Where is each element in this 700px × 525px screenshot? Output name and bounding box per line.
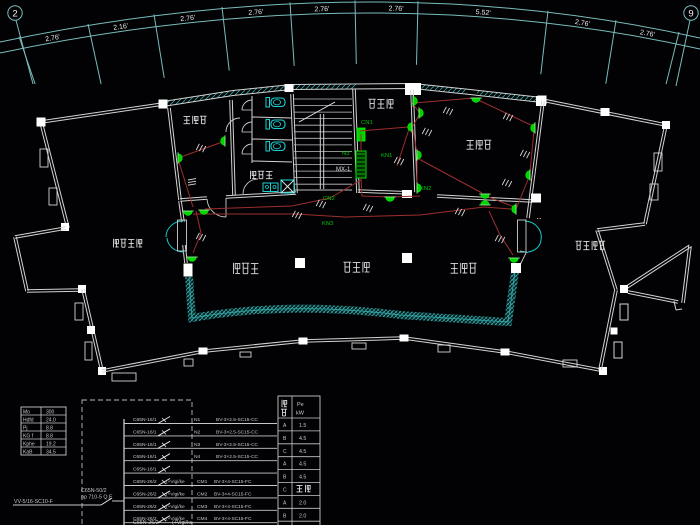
svg-text:8.8: 8.8 [46, 434, 53, 440]
svg-text:C65N-16/1: C65N-16/1 [133, 442, 157, 448]
svg-text:BV-3×2.5-SC15-CC: BV-3×2.5-SC15-CC [216, 442, 259, 448]
svg-text:2: 2 [12, 9, 17, 20]
svg-text:(+Vigi/ke: (+Vigi/ke [166, 504, 185, 510]
svg-text:300: 300 [46, 410, 55, 416]
svg-text:C65N-26/2: C65N-26/2 [133, 491, 157, 497]
svg-text:N3: N3 [194, 442, 201, 448]
svg-text:C65N-26/2: C65N-26/2 [133, 504, 157, 510]
svg-text:MX-1: MX-1 [336, 167, 351, 173]
svg-text:2.0: 2.0 [299, 513, 306, 519]
svg-text:(+Vigi/ke: (+Vigi/ke [172, 520, 193, 525]
svg-text:CM4: CM4 [197, 516, 208, 522]
svg-text:5.52': 5.52' [475, 9, 491, 17]
svg-text:C65N-50/2: C65N-50/2 [81, 488, 107, 494]
svg-text:2.0: 2.0 [299, 500, 306, 506]
svg-text:Pj: Pj [23, 426, 27, 432]
svg-text:C65N-26/2: C65N-26/2 [133, 479, 157, 485]
svg-text:2.76': 2.76' [388, 6, 403, 13]
svg-text:C: C [283, 449, 287, 455]
svg-text:N4: N4 [194, 454, 201, 460]
svg-text:KaB: KaB [23, 450, 33, 456]
svg-text:BV-3×2.5-SC15-CC: BV-3×2.5-SC15-CC [216, 429, 259, 435]
svg-text:C65N-16/1: C65N-16/1 [133, 454, 157, 460]
svg-text:N2: N2 [194, 429, 201, 435]
svg-text:BV-3×2.5-SC15-CC: BV-3×2.5-SC15-CC [216, 417, 259, 423]
svg-text:KN3: KN3 [322, 221, 334, 227]
svg-text:BV-3×4-SC15-FC: BV-3×4-SC15-FC [214, 491, 252, 497]
svg-text:24.0: 24.0 [46, 418, 56, 424]
svg-text:Mo: Mo [23, 410, 30, 416]
svg-text:CN1: CN1 [361, 120, 373, 126]
svg-text:BV-3×2.5-SC15-CC: BV-3×2.5-SC15-CC [216, 454, 259, 460]
svg-text:C65N-16/1: C65N-16/1 [133, 467, 157, 473]
svg-text:34.5: 34.5 [46, 450, 56, 456]
svg-text:Hdfd: Hdfd [23, 418, 34, 424]
svg-text:N3: N3 [342, 151, 350, 157]
svg-text:19.2: 19.2 [46, 442, 56, 448]
svg-text:4.5: 4.5 [299, 462, 306, 468]
svg-text:(+Vigi/ke: (+Vigi/ke [166, 491, 185, 497]
svg-text:KN2: KN2 [420, 186, 431, 192]
svg-text:BV-3×4-SC15-FC: BV-3×4-SC15-FC [214, 516, 252, 522]
svg-text:BV-3×4-SC15-FC: BV-3×4-SC15-FC [214, 479, 252, 485]
svg-text:BV-3×4-SC15-FC: BV-3×4-SC15-FC [214, 504, 252, 510]
svg-text:VV-5/16-SC10-F: VV-5/16-SC10-F [14, 499, 54, 505]
svg-text:(+Vigi/ke: (+Vigi/ke [166, 479, 185, 485]
svg-text:4.5: 4.5 [299, 436, 306, 442]
svg-text:C65N-26/2: C65N-26/2 [133, 520, 159, 525]
svg-text:CM3: CM3 [197, 504, 208, 510]
svg-text:2.76': 2.76' [314, 6, 329, 13]
svg-text:CM2: CM2 [197, 491, 208, 497]
svg-text:9: 9 [688, 9, 693, 20]
svg-text:CN2: CN2 [323, 196, 335, 202]
svg-text:4.5: 4.5 [299, 449, 306, 455]
svg-text:4.5: 4.5 [299, 475, 306, 481]
svg-text:N1: N1 [194, 417, 201, 423]
svg-text:C65N-16/1: C65N-16/1 [133, 417, 157, 423]
svg-text:C: C [283, 488, 287, 494]
svg-text:kW: kW [296, 411, 305, 417]
svg-text:KN1: KN1 [381, 153, 392, 159]
svg-text:Kphe: Kphe [23, 442, 35, 448]
svg-text:1.5: 1.5 [299, 423, 306, 429]
svg-text:np 710-5 Q.E: np 710-5 Q.E [81, 495, 113, 501]
svg-text:2.76': 2.76' [248, 9, 263, 17]
svg-text:CM1: CM1 [197, 479, 208, 485]
svg-text:KG f: KG f [23, 434, 34, 440]
svg-text:8.8: 8.8 [46, 426, 53, 432]
svg-text:C65N-16/1: C65N-16/1 [133, 429, 157, 435]
svg-text:Pe: Pe [297, 402, 304, 408]
